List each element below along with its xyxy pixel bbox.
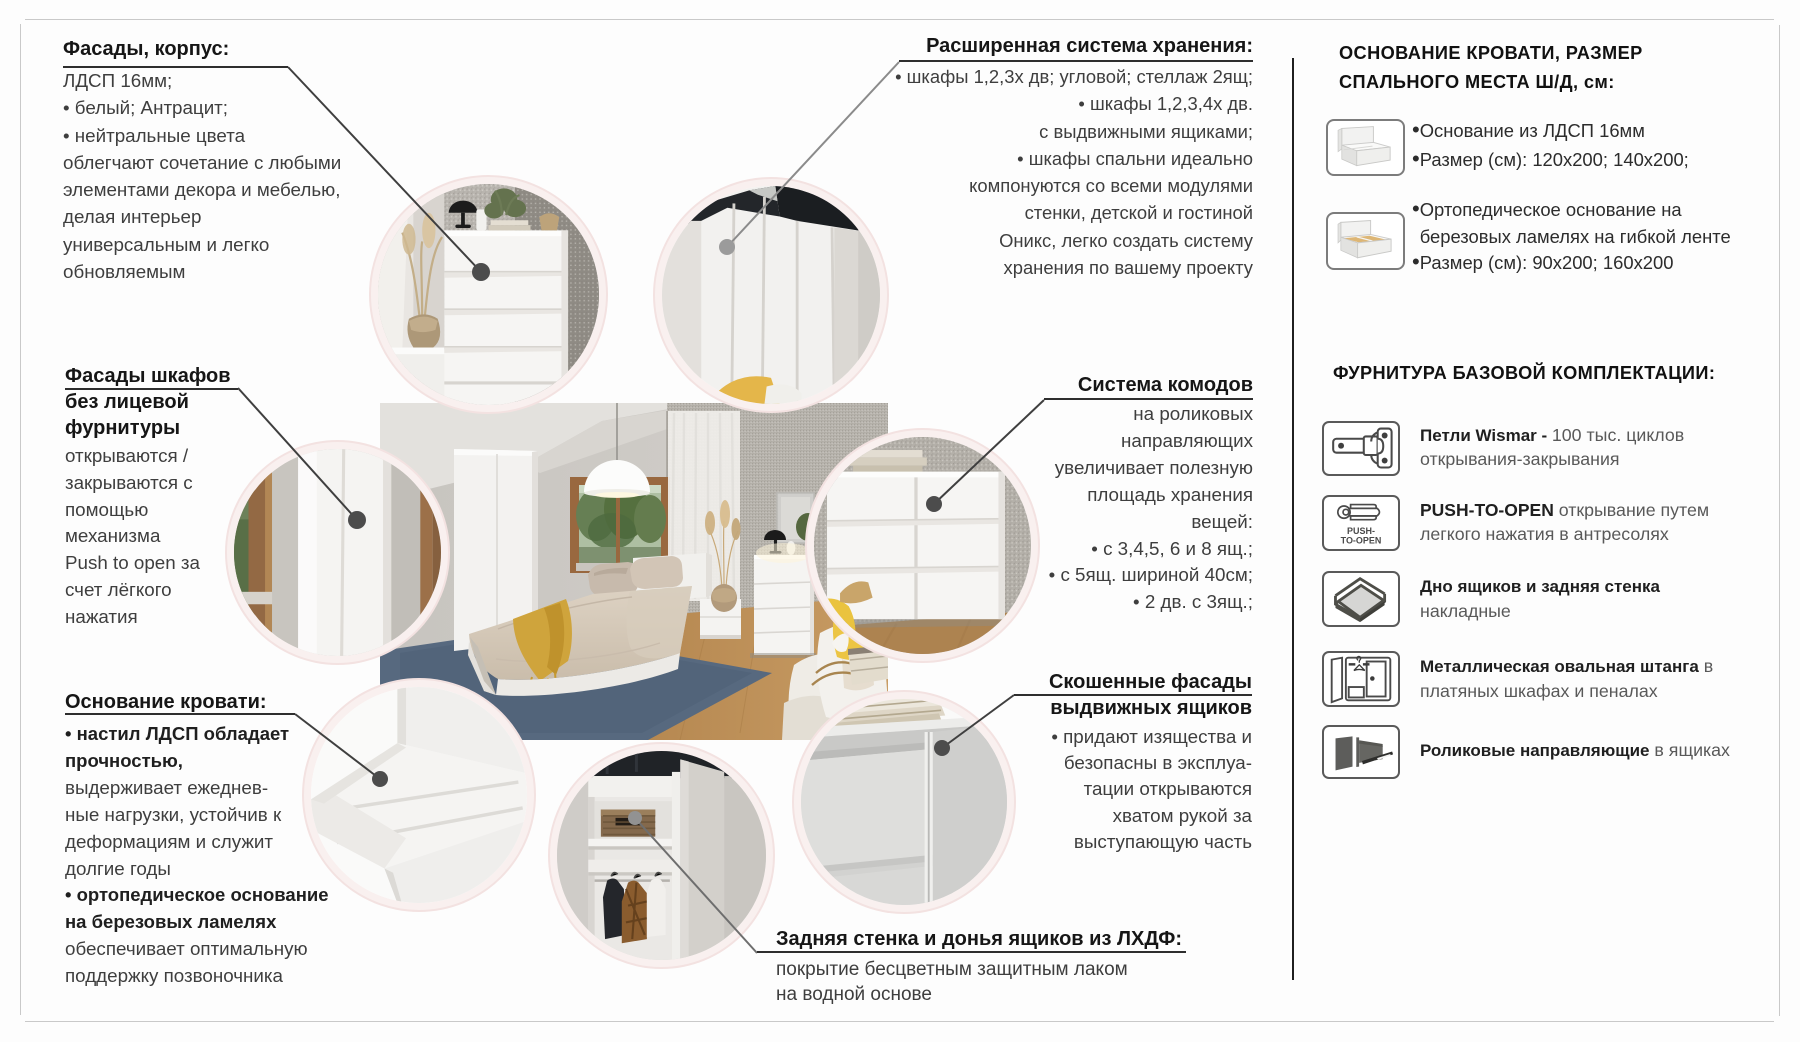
svg-text:TO-OPEN: TO-OPEN — [1341, 535, 1382, 545]
svg-text:PUSH-: PUSH- — [1347, 526, 1375, 536]
